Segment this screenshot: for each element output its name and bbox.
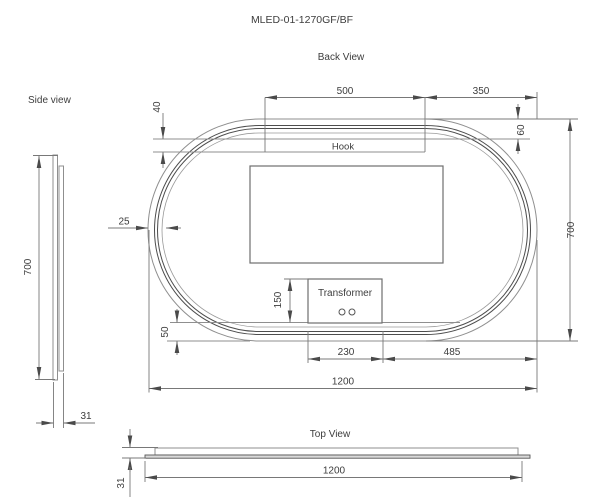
technical-drawing-page: MLED-01-1270GF/BF Back View Side view To… xyxy=(0,0,600,503)
dim-top-thickness: 31 xyxy=(116,429,158,497)
svg-text:150: 150 xyxy=(273,291,284,308)
hook-label: Hook xyxy=(332,142,354,153)
dim-transformer-to-edge: 485 xyxy=(383,347,537,359)
svg-text:700: 700 xyxy=(23,258,34,275)
svg-text:230: 230 xyxy=(338,347,355,358)
svg-text:31: 31 xyxy=(116,477,127,489)
transformer-box xyxy=(308,279,382,323)
svg-text:1200: 1200 xyxy=(332,377,355,388)
technical-drawing-svg: MLED-01-1270GF/BF Back View Side view To… xyxy=(0,0,600,503)
dim-top-right: 350 xyxy=(425,86,537,119)
back-view-label: Back View xyxy=(318,52,365,63)
dim-frame-thickness: 25 xyxy=(108,217,181,229)
transformer-hole-left-icon xyxy=(339,309,345,315)
side-view-label: Side view xyxy=(28,95,72,106)
dim-top-edge-offset: 60 xyxy=(426,104,578,154)
svg-text:40: 40 xyxy=(152,101,163,113)
dim-side-height: 700 xyxy=(23,156,39,379)
dim-height: 700 xyxy=(426,119,578,341)
svg-text:350: 350 xyxy=(473,86,490,97)
svg-text:31: 31 xyxy=(80,411,92,422)
transformer-hole-right-icon xyxy=(349,309,355,315)
svg-text:1200: 1200 xyxy=(323,466,346,477)
dim-top-width: 1200 xyxy=(145,461,522,482)
dim-transformer-height: 150 xyxy=(273,279,308,323)
top-glass-profile xyxy=(145,455,530,458)
dim-bottom-offset: 50 xyxy=(160,309,177,355)
svg-text:700: 700 xyxy=(566,221,577,238)
svg-text:50: 50 xyxy=(160,326,171,338)
side-back-panel-profile xyxy=(59,166,64,371)
dim-side-thickness: 31 xyxy=(36,373,95,428)
drawing-title: MLED-01-1270GF/BF xyxy=(251,14,353,26)
dim-transformer-width: 230 xyxy=(308,331,383,363)
dim-hook-length: 500 xyxy=(265,86,425,98)
svg-text:60: 60 xyxy=(516,124,527,136)
dim-hook-height: 40 xyxy=(152,101,163,168)
back-view: Hook Transformer 500 350 40 xyxy=(108,86,578,393)
svg-text:500: 500 xyxy=(337,86,354,97)
top-back-panel-profile xyxy=(155,448,518,455)
side-view: 700 31 xyxy=(23,155,95,428)
svg-text:25: 25 xyxy=(118,217,130,228)
top-view-label: Top View xyxy=(310,429,351,440)
transformer-label: Transformer xyxy=(318,288,373,299)
inner-panel-rect xyxy=(250,166,443,263)
svg-text:485: 485 xyxy=(444,347,461,358)
side-glass-profile xyxy=(53,155,58,380)
